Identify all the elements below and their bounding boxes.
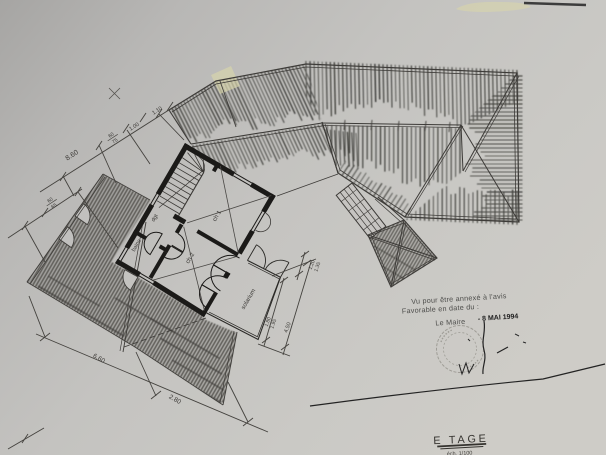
svg-text:éch. 1/100: éch. 1/100 — [447, 450, 473, 455]
svg-text:Le Maire: Le Maire — [435, 317, 465, 328]
